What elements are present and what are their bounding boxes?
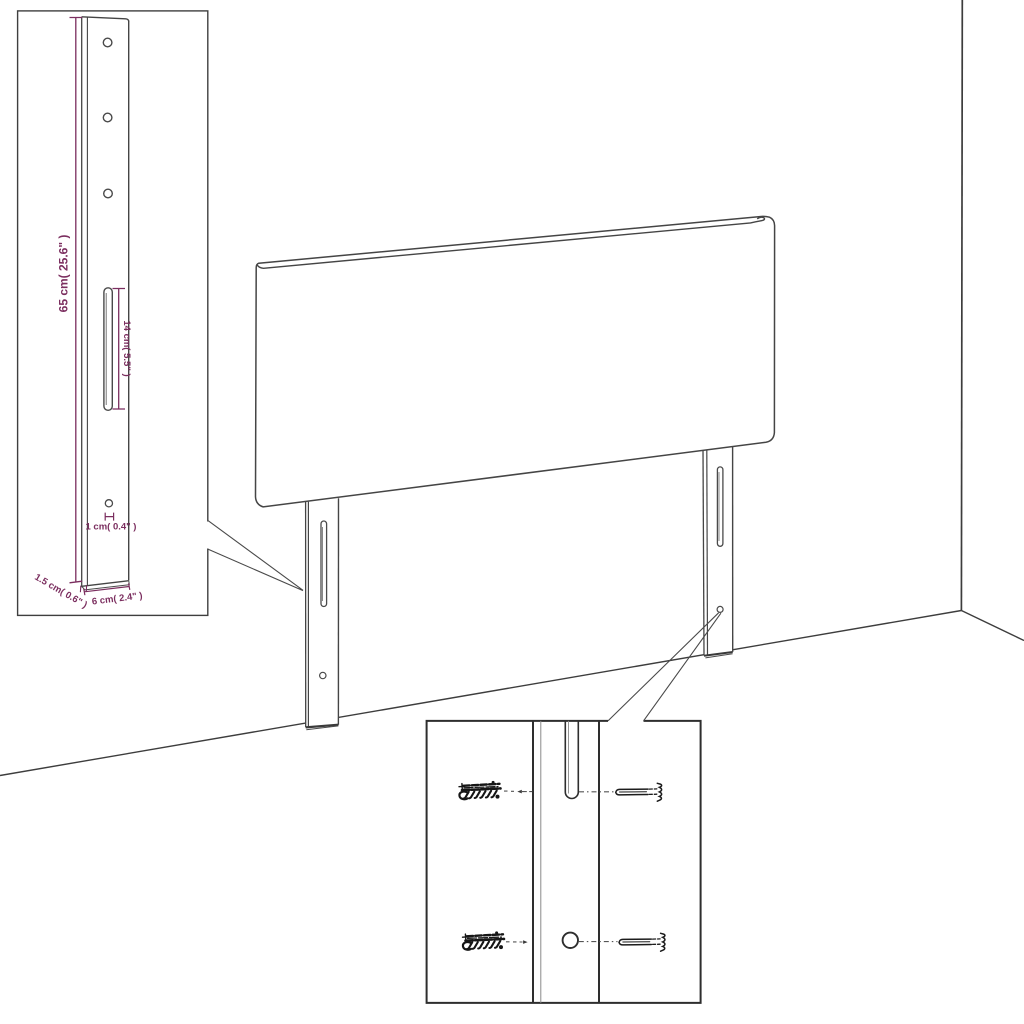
svg-text:65 cm( 25.6" ): 65 cm( 25.6" ) [57,235,71,313]
svg-text:14 cm( 5.5" ): 14 cm( 5.5" ) [121,320,132,376]
svg-text:1 cm( 0.4" ): 1 cm( 0.4" ) [86,522,137,533]
